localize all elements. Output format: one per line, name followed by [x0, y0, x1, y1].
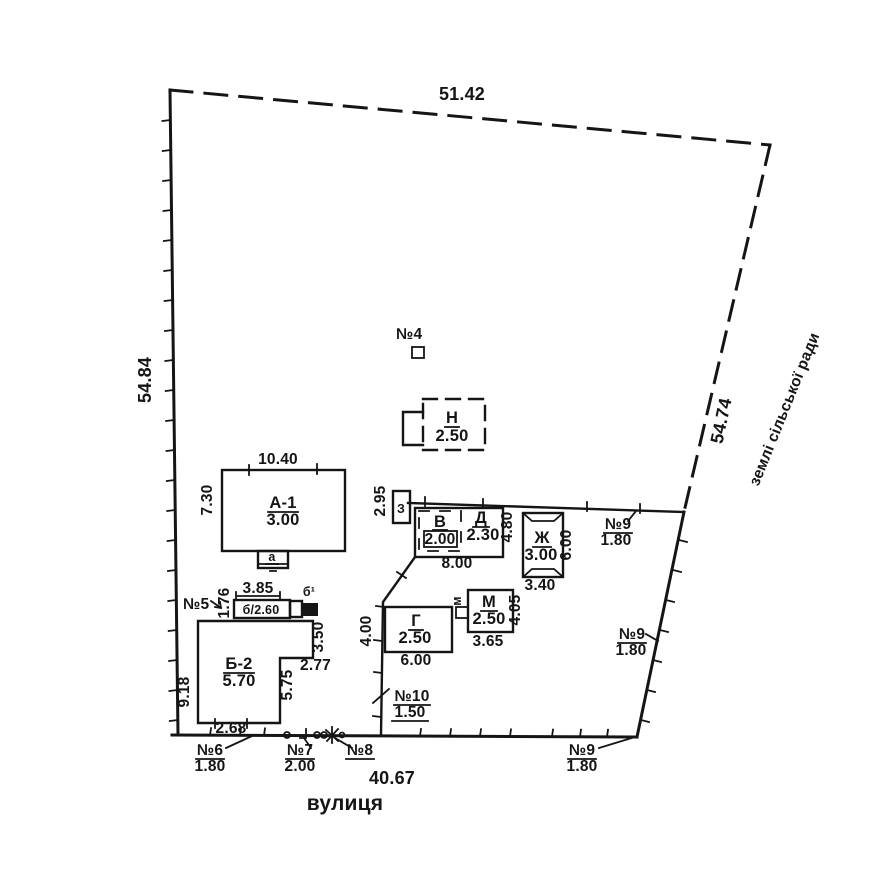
building-g-label: Г — [411, 612, 421, 630]
cadastral-plan-sheet: 51.42 54.84 54.74 40.67 землі сільської … — [0, 0, 894, 894]
building-zh-dim-right: 6.00 — [558, 530, 575, 561]
boundary-right-solid — [637, 512, 684, 737]
building-n-label: Н — [446, 409, 458, 427]
building-g-dim-bottom: 6.00 — [401, 652, 432, 669]
building-z-dim-left: 2.95 — [372, 485, 389, 516]
building-n-porch — [403, 412, 423, 445]
building-d-mark: 2.30 — [467, 526, 500, 544]
building-m-annex-label: м — [450, 596, 464, 605]
building-m-mark: 2.50 — [473, 610, 506, 628]
marker-n9-fence-label: №9 — [605, 516, 631, 533]
marker-n10-value: 1.50 — [395, 704, 426, 721]
label-street: вулиця — [307, 792, 383, 815]
dim-street-length: 40.67 — [369, 768, 415, 788]
building-n: Н 2.50 — [403, 399, 485, 450]
boundary-right-ticks — [641, 540, 687, 722]
building-n-mark: 2.50 — [436, 427, 469, 445]
building-z: З 2.95 — [372, 485, 410, 523]
building-a1-annex-label: а — [268, 550, 276, 564]
building-zh-label: Ж — [533, 529, 549, 547]
building-m: м М 2.50 3.65 4.05 — [450, 590, 524, 650]
marker-n6-value: 1.80 — [195, 758, 226, 775]
label-adjacent-lands: землі сільської ради — [746, 330, 823, 488]
dim-fence-length: 4.00 — [358, 616, 375, 647]
building-b-annex-cell — [290, 601, 302, 617]
building-d: Д 2.30 8.00 4.80 В 2.00 — [415, 508, 516, 572]
building-g: Г 2.50 6.00 — [385, 607, 452, 669]
building-b-annex-dim-left: 1.76 — [216, 587, 233, 618]
building-b2-dim-inner-v: 5.75 — [279, 669, 296, 700]
boundary-left — [170, 90, 178, 735]
building-m-dim-bottom: 3.65 — [473, 633, 504, 650]
marker-n7: №7 2.00 — [285, 738, 316, 775]
building-a1-dim-left: 7.30 — [199, 485, 216, 516]
marker-n4-point — [412, 347, 424, 358]
building-v-mark: 2.00 — [425, 531, 456, 548]
marker-n9-side-value: 1.80 — [616, 642, 647, 659]
building-b-annex-corner-label: б¹ — [303, 585, 315, 599]
building-d-dim-bottom: 8.00 — [442, 555, 473, 572]
building-b2-dim-left: 9.18 — [176, 676, 193, 707]
building-b2: Б-2 5.70 9.18 2.68 5.75 2.77 3.50 — [176, 621, 331, 737]
building-v-label: В — [434, 513, 446, 531]
building-b-annex-label: б/2.60 — [243, 603, 280, 617]
marker-n9-side: №9 1.80 — [616, 626, 658, 659]
building-zh-mark: 3.00 — [525, 546, 558, 564]
marker-n9-corner-leader — [599, 737, 635, 748]
building-a1-mark: 3.00 — [267, 511, 300, 529]
building-a1: А-1 3.00 10.40 7.30 а — [199, 451, 345, 571]
building-b-annex: б/2.60 б¹ 3.85 1.76 — [216, 580, 318, 618]
building-b2-label: Б-2 — [225, 655, 252, 673]
building-b-annex-corner-block — [303, 603, 318, 616]
dim-left-length: 54.84 — [135, 357, 155, 403]
building-b2-dim-right: 3.50 — [310, 622, 327, 653]
building-b2-dim-inner-h: 2.77 — [300, 657, 331, 674]
building-b2-mark: 5.70 — [223, 672, 256, 690]
building-zh: Ж 3.00 6.00 3.40 — [523, 513, 575, 594]
marker-n4: №4 — [396, 326, 424, 358]
building-b-annex-dim-top: 3.85 — [243, 580, 274, 597]
marker-n6-label: №6 — [197, 742, 223, 759]
building-d-label: Д — [475, 509, 487, 527]
marker-n5-label: №5 — [183, 596, 209, 613]
marker-n9-side-leader — [646, 634, 658, 641]
building-zh-dim-bottom: 3.40 — [525, 577, 556, 594]
site-plan-drawing: 51.42 54.84 54.74 40.67 землі сільської … — [0, 0, 894, 894]
marker-n10-label: №10 — [394, 688, 429, 705]
building-g-mark: 2.50 — [399, 629, 432, 647]
marker-n7-value: 2.00 — [285, 758, 316, 775]
marker-n9-corner-label: №9 — [569, 742, 595, 759]
marker-n9-corner-value: 1.80 — [567, 758, 598, 775]
building-a1-label: А-1 — [269, 494, 296, 512]
building-m-label: М — [482, 593, 496, 611]
building-b2-dim-bottom: 2.68 — [216, 720, 247, 737]
building-m-annex-outline — [456, 607, 468, 618]
marker-n9-fence-value: 1.80 — [601, 532, 632, 549]
marker-n9-side-label: №9 — [619, 626, 645, 643]
building-a1-dim-top: 10.40 — [258, 451, 298, 468]
marker-n9-fence: №9 1.80 — [601, 511, 636, 549]
marker-n6-leader — [226, 736, 252, 748]
dim-top-length: 51.42 — [439, 84, 485, 104]
building-z-label: З — [397, 502, 405, 516]
marker-n8: №8 — [335, 738, 374, 759]
marker-n8-label: №8 — [347, 742, 373, 759]
building-d-dim-right: 4.80 — [499, 512, 516, 543]
marker-n9-corner: №9 1.80 — [567, 737, 635, 775]
marker-n6: №6 1.80 — [195, 736, 252, 775]
marker-n4-label: №4 — [396, 326, 422, 343]
building-m-dim-right: 4.05 — [507, 594, 524, 625]
